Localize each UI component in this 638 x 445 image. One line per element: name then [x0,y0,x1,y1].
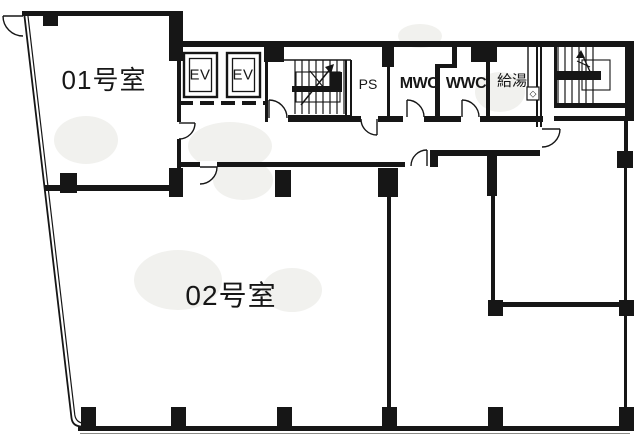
elevator-2-label: EV [232,68,253,83]
pipe-shaft-label: PS [359,77,378,91]
kitchenette-label: 給湯 [497,74,527,89]
male-wc-label: MWC [400,76,438,92]
door-entrance-northwest [3,16,23,36]
room01-label: 01号室 [62,67,147,93]
stairwell-east [556,47,610,103]
door-room02-center [411,150,427,166]
stair-landing-bar [556,71,601,80]
room02-label: 02号室 [185,282,276,310]
floorplan: 01号室 02号室 EV EV PS MWC WWC 給湯 ◇ [0,0,638,445]
kitchenette-valve-symbol: ◇ [530,90,537,99]
elevator-1-label: EV [189,68,210,83]
door-corridor-east [542,129,560,147]
stair-direction-arrow [301,64,334,105]
female-wc-label: WWC [446,76,486,92]
